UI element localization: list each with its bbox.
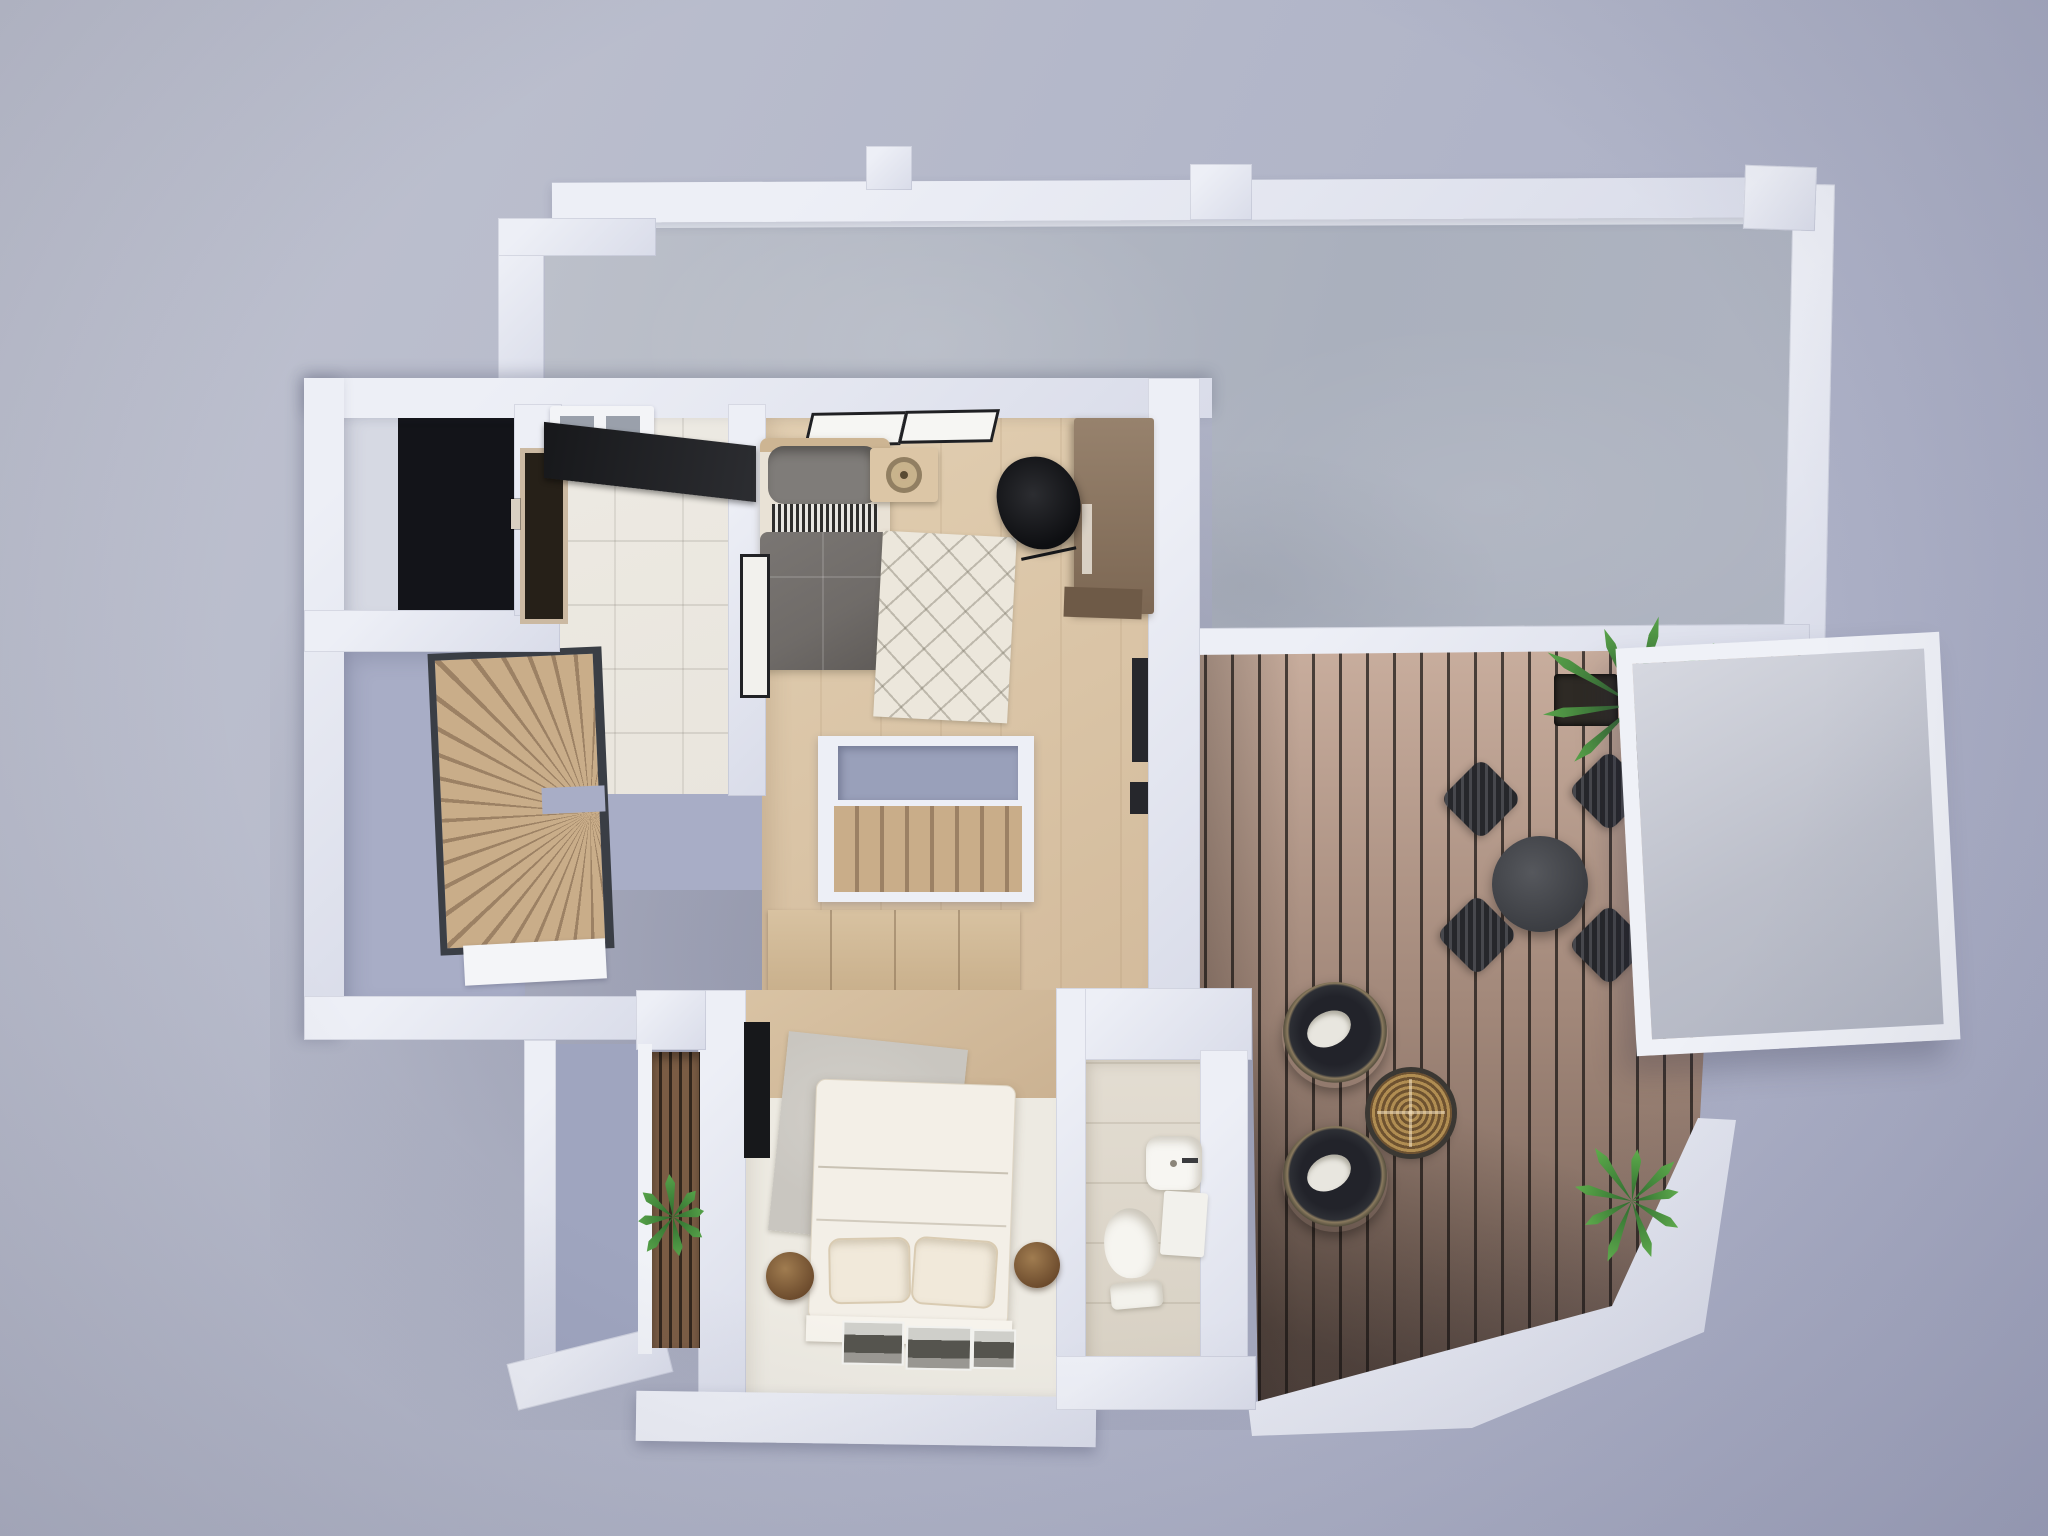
floor-plan-render — [0, 0, 2048, 1536]
decor-tray — [886, 457, 922, 493]
outer-wall-bottom — [636, 1391, 1097, 1447]
wash-basin — [1146, 1136, 1202, 1190]
wicker-side-table — [1370, 1072, 1452, 1154]
outer-wall-right — [1148, 378, 1200, 1008]
bed-striped-blanket — [772, 504, 878, 534]
parapet-chimney-block — [866, 146, 912, 190]
winder-landing-gap — [542, 786, 606, 815]
parapet-wall-top — [552, 177, 1804, 222]
wall-bottom-left-block — [304, 996, 652, 1040]
lounge-pillow — [1301, 1003, 1358, 1055]
parapet-corner-block — [1743, 165, 1817, 231]
wall-picture-frame — [898, 409, 1000, 444]
parapet-wall-step — [498, 218, 656, 256]
diamond-rug — [873, 531, 1017, 724]
skylight-panel — [1616, 632, 1961, 1056]
bed-pillow — [910, 1236, 999, 1310]
balcony-strip-floor — [552, 1044, 640, 1354]
drain — [1170, 1160, 1177, 1167]
window-sill — [638, 1044, 652, 1354]
lounge-chair — [1282, 982, 1388, 1088]
stairwell — [818, 736, 1034, 902]
dining-table — [1492, 836, 1588, 932]
slat-window — [652, 1052, 700, 1348]
winder-staircase — [427, 646, 614, 955]
wall-niche — [1130, 782, 1148, 814]
bed-duvet — [760, 532, 890, 670]
tv-panel — [744, 1022, 770, 1158]
master-wardrobe-top — [768, 910, 1020, 992]
bed-pillow — [828, 1237, 911, 1304]
wall-niche — [1132, 658, 1148, 762]
wall-corner — [636, 990, 706, 1050]
lift-control-panel — [511, 499, 520, 529]
lounge-pillow — [1301, 1147, 1358, 1199]
photo-prints — [842, 1319, 1013, 1372]
desk-bench — [1064, 587, 1143, 620]
leaning-picture-frame — [740, 554, 770, 698]
black-floor-opening — [398, 414, 518, 610]
wall-balcony-outer — [524, 1040, 556, 1364]
wall-master-left — [698, 990, 746, 1410]
double-bed — [808, 1079, 1016, 1328]
outer-wall-left — [304, 378, 344, 1040]
bathroom-shelf — [1160, 1191, 1208, 1258]
parapet-wall-right — [1783, 184, 1835, 663]
doormat — [463, 938, 607, 985]
outer-wall-bottom-right — [1056, 1356, 1256, 1410]
wall-bathroom-right — [1200, 1050, 1248, 1404]
round-side-table — [1014, 1242, 1060, 1288]
toilet-bowl — [1101, 1206, 1161, 1280]
wall-bathroom-left — [1056, 988, 1086, 1408]
bed-pillow — [768, 446, 880, 504]
nightstand — [870, 448, 938, 502]
photo-print — [972, 1329, 1017, 1370]
round-side-table — [766, 1252, 814, 1300]
toilet — [1099, 1206, 1169, 1323]
storage-void-room — [340, 404, 522, 616]
lounge-chair — [1282, 1126, 1388, 1232]
toilet-tank — [1110, 1280, 1164, 1310]
photo-print — [842, 1321, 905, 1366]
faucet — [1182, 1158, 1198, 1163]
desk-wardrobe — [1074, 418, 1154, 614]
straight-staircase — [834, 806, 1022, 892]
photo-print — [906, 1326, 973, 1371]
stairwell-void — [838, 746, 1018, 800]
parapet-pillar — [1190, 164, 1252, 220]
